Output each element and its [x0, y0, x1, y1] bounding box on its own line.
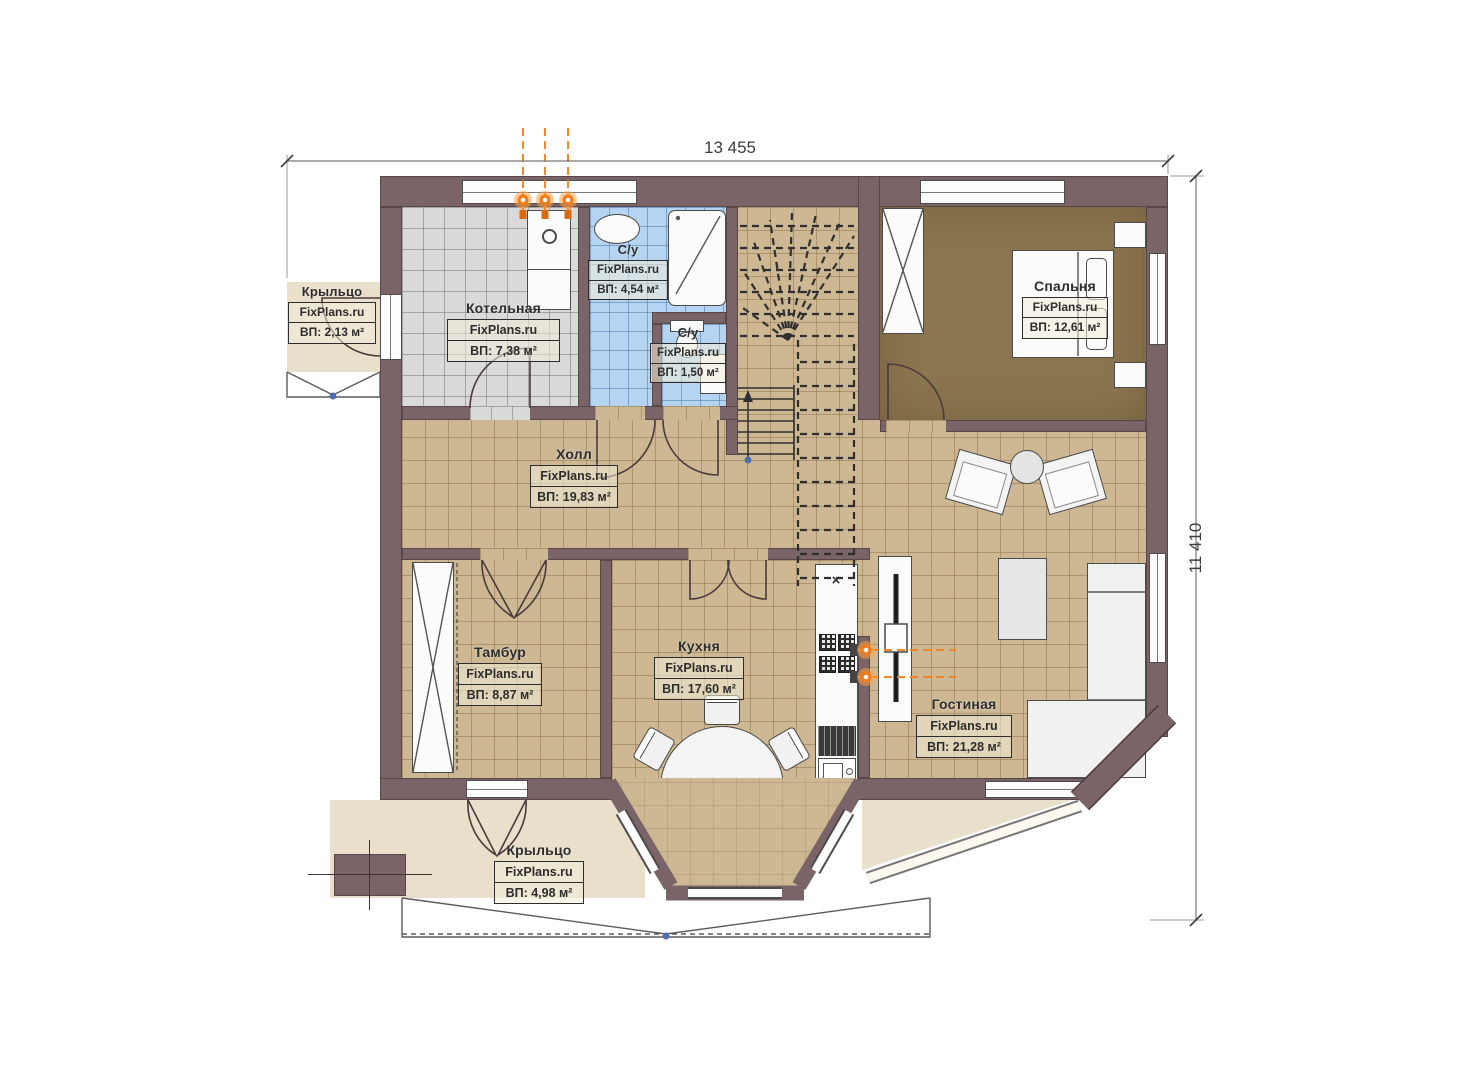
watermark: FixPlans.ru: [651, 344, 725, 364]
dimension-height-label: 11 410: [1186, 503, 1206, 593]
gas-lines: [514, 128, 956, 686]
room-name: Кухня: [654, 638, 744, 654]
watermark: FixPlans.ru: [655, 658, 743, 679]
dimension-width-label: 13 455: [685, 138, 775, 158]
room-area: ВП: 4,98 м²: [495, 883, 583, 903]
room-label-living: Гостиная FixPlans.ru ВП: 21,28 м²: [916, 696, 1012, 758]
room-name: Тамбур: [458, 644, 542, 660]
watermark: FixPlans.ru: [289, 303, 375, 323]
room-name: Котельная: [447, 300, 560, 316]
stair-walk-line: [743, 390, 753, 464]
door-arc-wc: [663, 420, 718, 475]
floor-plan: ×: [0, 0, 1473, 1080]
chamfer-wall: [1080, 714, 1167, 801]
stairs: [738, 212, 854, 586]
room-area: ВП: 1,50 м²: [651, 364, 725, 383]
room-area: ВП: 8,87 м²: [459, 685, 541, 705]
room-label-tambour: Тамбур FixPlans.ru ВП: 8,87 м²: [458, 644, 542, 706]
plan-linework: [0, 0, 1473, 1080]
bay-window: [609, 778, 861, 893]
watermark: FixPlans.ru: [1023, 298, 1107, 318]
room-name: Крыльцо: [494, 842, 584, 858]
room-area: ВП: 2,13 м²: [289, 323, 375, 342]
room-area: ВП: 4,54 м²: [589, 281, 667, 300]
room-label-kitchen: Кухня FixPlans.ru ВП: 17,60 м²: [654, 638, 744, 700]
room-name: Спальня: [1022, 278, 1108, 294]
room-area: ВП: 21,28 м²: [917, 737, 1011, 757]
room-area: ВП: 12,61 м²: [1023, 318, 1107, 337]
room-label-bedroom: Спальня FixPlans.ru ВП: 12,61 м²: [1022, 278, 1108, 339]
room-label-boiler: Котельная FixPlans.ru ВП: 7,38 м²: [447, 300, 560, 362]
room-label-bathroom: С/у FixPlans.ru ВП: 4,54 м²: [588, 242, 668, 300]
room-label-wc: С/у FixPlans.ru ВП: 1,50 м²: [650, 325, 726, 383]
tv: [885, 574, 907, 702]
room-name: Холл: [530, 446, 618, 462]
room-area: ВП: 7,38 м²: [448, 341, 559, 361]
porch-bottom-roof: [402, 898, 930, 940]
watermark: FixPlans.ru: [495, 862, 583, 883]
room-name: С/у: [650, 325, 726, 340]
room-area: ВП: 19,83 м²: [531, 487, 617, 507]
porch-wrap-right: [862, 800, 1080, 878]
watermark: FixPlans.ru: [589, 261, 667, 281]
porch-left-roof: [287, 372, 380, 400]
watermark: FixPlans.ru: [459, 664, 541, 685]
room-name: С/у: [588, 242, 668, 257]
door-arc-tambour-top: [482, 560, 546, 617]
room-label-porch-bottom: Крыльцо FixPlans.ru ВП: 4,98 м²: [494, 842, 584, 904]
door-arc-kitchen: [690, 560, 766, 599]
watermark: FixPlans.ru: [448, 320, 559, 341]
room-name: Гостиная: [916, 696, 1012, 712]
room-area: ВП: 17,60 м²: [655, 679, 743, 699]
room-label-hall: Холл FixPlans.ru ВП: 19,83 м²: [530, 446, 618, 508]
watermark: FixPlans.ru: [531, 466, 617, 487]
room-name: Крыльцо: [288, 284, 376, 299]
gas-connector-icon: [514, 191, 875, 686]
watermark: FixPlans.ru: [917, 716, 1011, 737]
room-label-porch-left: Крыльцо FixPlans.ru ВП: 2,13 м²: [288, 284, 376, 344]
door-arc-bedroom: [888, 364, 944, 420]
